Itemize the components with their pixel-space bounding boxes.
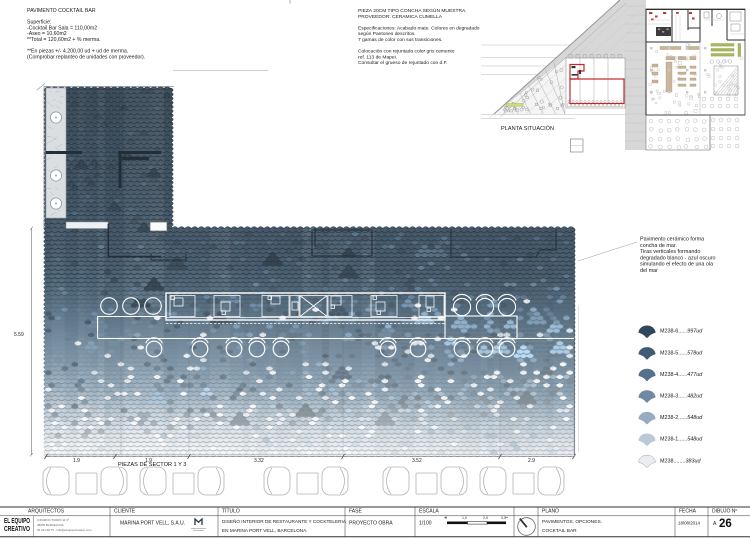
svg-text:M238-2......548ud: M238-2......548ud bbox=[660, 415, 703, 421]
svg-text:0: 0 bbox=[445, 516, 447, 520]
svg-text:3.32: 3.32 bbox=[254, 458, 264, 464]
svg-text:PIEZA 20CM TIPO CONCHA SEGÚN M: PIEZA 20CM TIPO CONCHA SEGÚN MUESTRA. bbox=[358, 7, 467, 14]
svg-text:ESCALA: ESCALA bbox=[419, 509, 439, 515]
svg-text:**Total = 120,60m2 + % merma.: **Total = 120,60m2 + % merma. bbox=[27, 37, 101, 43]
svg-text:(Comprobar replanteo de unidad: (Comprobar replanteo de unidades con pro… bbox=[27, 54, 145, 60]
svg-text:2.9: 2.9 bbox=[528, 458, 535, 464]
svg-text:PLANTA SITUACIÓN: PLANTA SITUACIÓN bbox=[501, 125, 554, 132]
svg-text:DIBUJO Nº: DIBUJO Nº bbox=[712, 509, 737, 515]
svg-text:PLANO: PLANO bbox=[542, 509, 559, 515]
svg-text:degradado blanco - azul oscuro: degradado blanco - azul oscuro bbox=[640, 255, 716, 261]
svg-text:COCKTAIL BAR: COCKTAIL BAR bbox=[542, 528, 577, 534]
svg-text:2,0: 2,0 bbox=[483, 516, 488, 520]
svg-text:del mar: del mar bbox=[640, 268, 658, 274]
svg-text:18/08/2014: 18/08/2014 bbox=[678, 521, 701, 526]
svg-text:ref. 113 de Mapei.: ref. 113 de Mapei. bbox=[358, 54, 397, 60]
svg-text:93 221 68 75 - info@elequipocr: 93 221 68 75 - info@elequipocreativo.com bbox=[37, 528, 92, 532]
svg-text:7 gamas de color con sus trans: 7 gamas de color con sus transiciones. bbox=[358, 37, 443, 43]
svg-text:Consultar el grueso de rejunta: Consultar el grueso de rejuntado con d.F… bbox=[358, 60, 447, 66]
svg-text:CLIENTE: CLIENTE bbox=[114, 509, 136, 515]
svg-text:1.9: 1.9 bbox=[73, 458, 80, 464]
svg-text:26: 26 bbox=[719, 518, 732, 530]
svg-text:Tiras verticales formando: Tiras verticales formando bbox=[640, 249, 700, 255]
svg-text:Pavimento cerámico forma: Pavimento cerámico forma bbox=[640, 237, 704, 243]
svg-text:según Pantones descritos.: según Pantones descritos. bbox=[358, 31, 416, 37]
svg-text:1/100: 1/100 bbox=[419, 521, 432, 527]
svg-text:PAVIMENTOS. OPCIONES.: PAVIMENTOS. OPCIONES. bbox=[542, 519, 602, 525]
svg-text:concha de mar.: concha de mar. bbox=[640, 243, 677, 249]
svg-text:Colocación con rejuntado color: Colocación con rejuntado color gris ceme… bbox=[358, 49, 455, 55]
svg-text:M238........383ud: M238........383ud bbox=[660, 458, 701, 464]
svg-text:ARQUITECTOS: ARQUITECTOS bbox=[28, 509, 65, 515]
svg-text:DISEÑO INTERIOR DE RESTAURANTE: DISEÑO INTERIOR DE RESTAURANTE Y COCKTEL… bbox=[222, 518, 347, 524]
svg-text:M238-4......477ud: M238-4......477ud bbox=[660, 372, 703, 378]
svg-text:Especificaciones: Acabado mate: Especificaciones: Acabado mate. Colores … bbox=[358, 25, 480, 31]
svg-text:FECHA: FECHA bbox=[679, 509, 697, 515]
svg-text:C/RAMON TURRÓ 11 3º: C/RAMON TURRÓ 11 3º bbox=[37, 517, 70, 522]
svg-text:3,0: 3,0 bbox=[501, 516, 506, 520]
svg-text:M238-3......482ud: M238-3......482ud bbox=[660, 394, 703, 400]
svg-text:M238-1......548ud: M238-1......548ud bbox=[660, 437, 703, 443]
svg-text:FASE: FASE bbox=[349, 509, 362, 515]
svg-text:5.59: 5.59 bbox=[14, 332, 24, 338]
svg-text:08005 BARCELONA: 08005 BARCELONA bbox=[37, 523, 64, 527]
svg-text:PROVEEDOR: CERAMICA CUMELLA: PROVEEDOR: CERAMICA CUMELLA bbox=[358, 14, 443, 20]
svg-text:MARINA PORT VELL, S.A.U.: MARINA PORT VELL, S.A.U. bbox=[120, 521, 185, 527]
svg-text:EL EQUIPO: EL EQUIPO bbox=[4, 518, 30, 525]
svg-text:1,0: 1,0 bbox=[462, 516, 467, 520]
svg-text:CREATIVO: CREATIVO bbox=[4, 526, 30, 533]
svg-text:M238-5......578ud: M238-5......578ud bbox=[660, 350, 703, 356]
svg-text:TÍTULO: TÍTULO bbox=[222, 508, 240, 515]
svg-text:PROYECTO OBRA: PROYECTO OBRA bbox=[349, 521, 393, 527]
svg-text:M238-6......997ud: M238-6......997ud bbox=[660, 329, 703, 335]
svg-text:EN MARINA PORT VELL, BARCELONA: EN MARINA PORT VELL, BARCELONA. bbox=[222, 528, 308, 533]
svg-text:3.52: 3.52 bbox=[412, 458, 422, 464]
svg-text:simulando el efecto de una ola: simulando el efecto de una ola bbox=[640, 262, 713, 268]
svg-text:PAVIMENTO COCKTAIL BAR: PAVIMENTO COCKTAIL BAR bbox=[27, 8, 96, 14]
